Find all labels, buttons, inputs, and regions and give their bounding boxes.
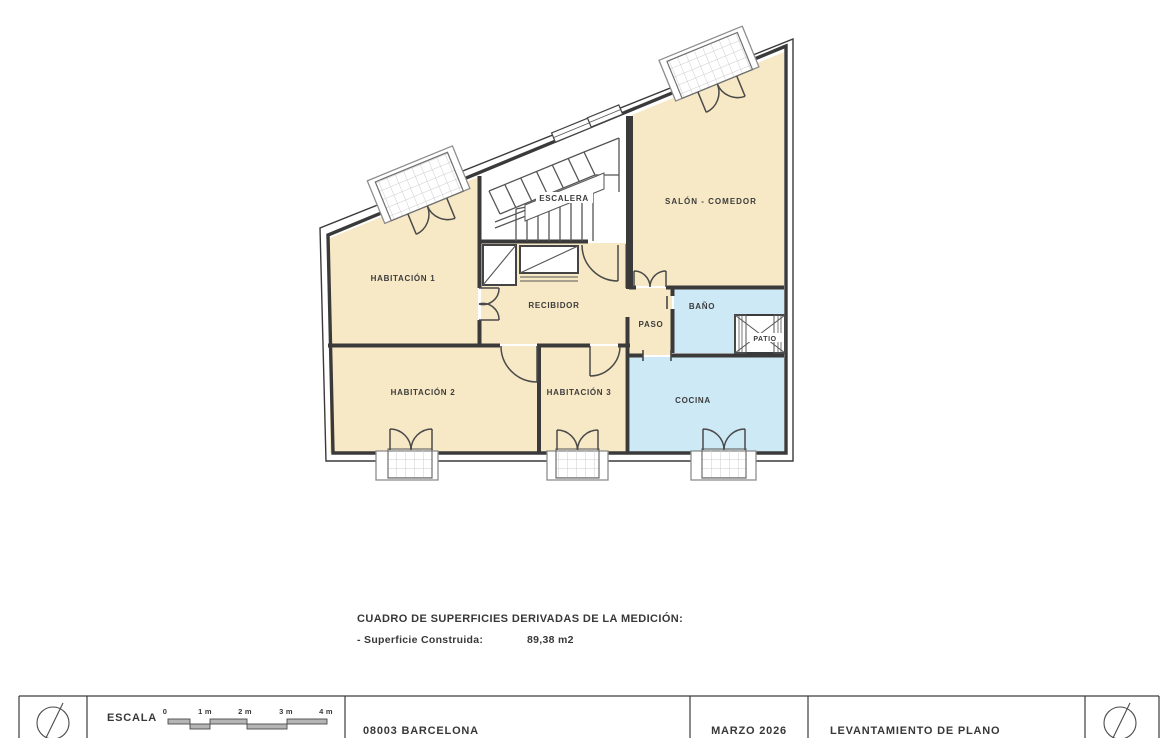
balcony-hatch (556, 449, 599, 478)
scale-tick-4: 4 m (319, 707, 333, 716)
stamp-circle-right (1104, 703, 1136, 738)
balcony-cocina (691, 449, 756, 480)
room-label-paso: PASO (639, 320, 664, 329)
summary-item-value: 89,38 m2 (527, 634, 574, 646)
balcony-hatch (702, 449, 746, 478)
title-block-doc-title: LEVANTAMIENTO DE PLANO (830, 725, 1000, 737)
title-block-date: MARZO 2026 (711, 725, 787, 737)
summary-title: CUADRO DE SUPERFICIES DERIVADAS DE LA ME… (357, 612, 683, 625)
room-label-salon: SALÓN - COMEDOR (665, 197, 757, 206)
room-label-cocina: COCINA (675, 396, 711, 405)
room-label-hab3: HABITACIÓN 3 (547, 388, 612, 397)
room-label-escalera: ESCALERA (539, 194, 589, 203)
balcony-hatch (388, 449, 432, 478)
balcony-hab3 (547, 449, 608, 480)
floor-plan-canvas: ESCALERA (0, 0, 1170, 738)
staircase: ESCALERA (489, 138, 619, 241)
title-block: ESCALA 0 1 m 2 m 3 m 4 m 08003 BARCELONA… (19, 696, 1159, 738)
scale-tick-2: 2 m (238, 707, 252, 716)
summary-item-label: - Superficie Construida: (357, 634, 483, 646)
room-label-hab1: HABITACIÓN 1 (371, 274, 436, 283)
facade-window-2 (587, 105, 622, 127)
stamp-circle-left (37, 703, 69, 738)
room-hab2-floor (330, 346, 537, 453)
scale-bar: 0 1 m 2 m 3 m 4 m (163, 707, 333, 729)
room-label-recibidor: RECIBIDOR (528, 301, 579, 310)
scale-bar-segment (247, 724, 287, 729)
room-label-patio: PATIO (753, 336, 776, 343)
plan-sheet: ESCALERA (0, 0, 1170, 738)
scale-tick-0: 0 (163, 707, 167, 716)
scale-bar-segment (168, 719, 190, 724)
surface-summary: CUADRO DE SUPERFICIES DERIVADAS DE LA ME… (357, 612, 683, 646)
room-label-bano: BAÑO (689, 302, 715, 311)
scale-bar-segment (190, 724, 210, 729)
title-block-address: 08003 BARCELONA (363, 725, 479, 737)
scale-bar-segment (210, 719, 247, 724)
room-cocina-floor (630, 357, 784, 453)
scale-label: ESCALA (107, 712, 157, 724)
scale-tick-1: 1 m (198, 707, 212, 716)
balcony-hab2 (376, 449, 438, 480)
scale-bar-segment (287, 719, 327, 724)
facade-window-1 (552, 118, 593, 142)
scale-tick-3: 3 m (279, 707, 293, 716)
room-label-hab2: HABITACIÓN 2 (391, 388, 456, 397)
